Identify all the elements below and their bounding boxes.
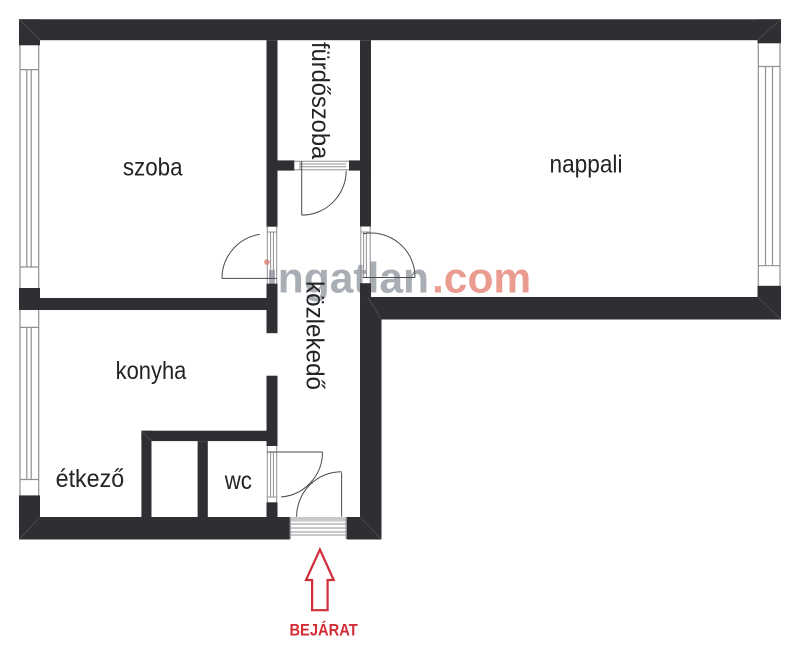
svg-text:étkező: étkező xyxy=(56,465,125,493)
svg-text:fürdőszoba: fürdőszoba xyxy=(306,42,334,159)
svg-text:nappali: nappali xyxy=(550,150,623,178)
svg-text:wc: wc xyxy=(224,467,252,495)
svg-text:BEJÁRAT: BEJÁRAT xyxy=(289,621,357,640)
svg-text:ıngatlan: ıngatlan xyxy=(266,256,429,303)
svg-text:közlekedő: közlekedő xyxy=(301,281,329,390)
svg-text:szoba: szoba xyxy=(123,153,183,181)
svg-text:.com: .com xyxy=(432,256,531,303)
svg-text:konyha: konyha xyxy=(116,357,187,385)
